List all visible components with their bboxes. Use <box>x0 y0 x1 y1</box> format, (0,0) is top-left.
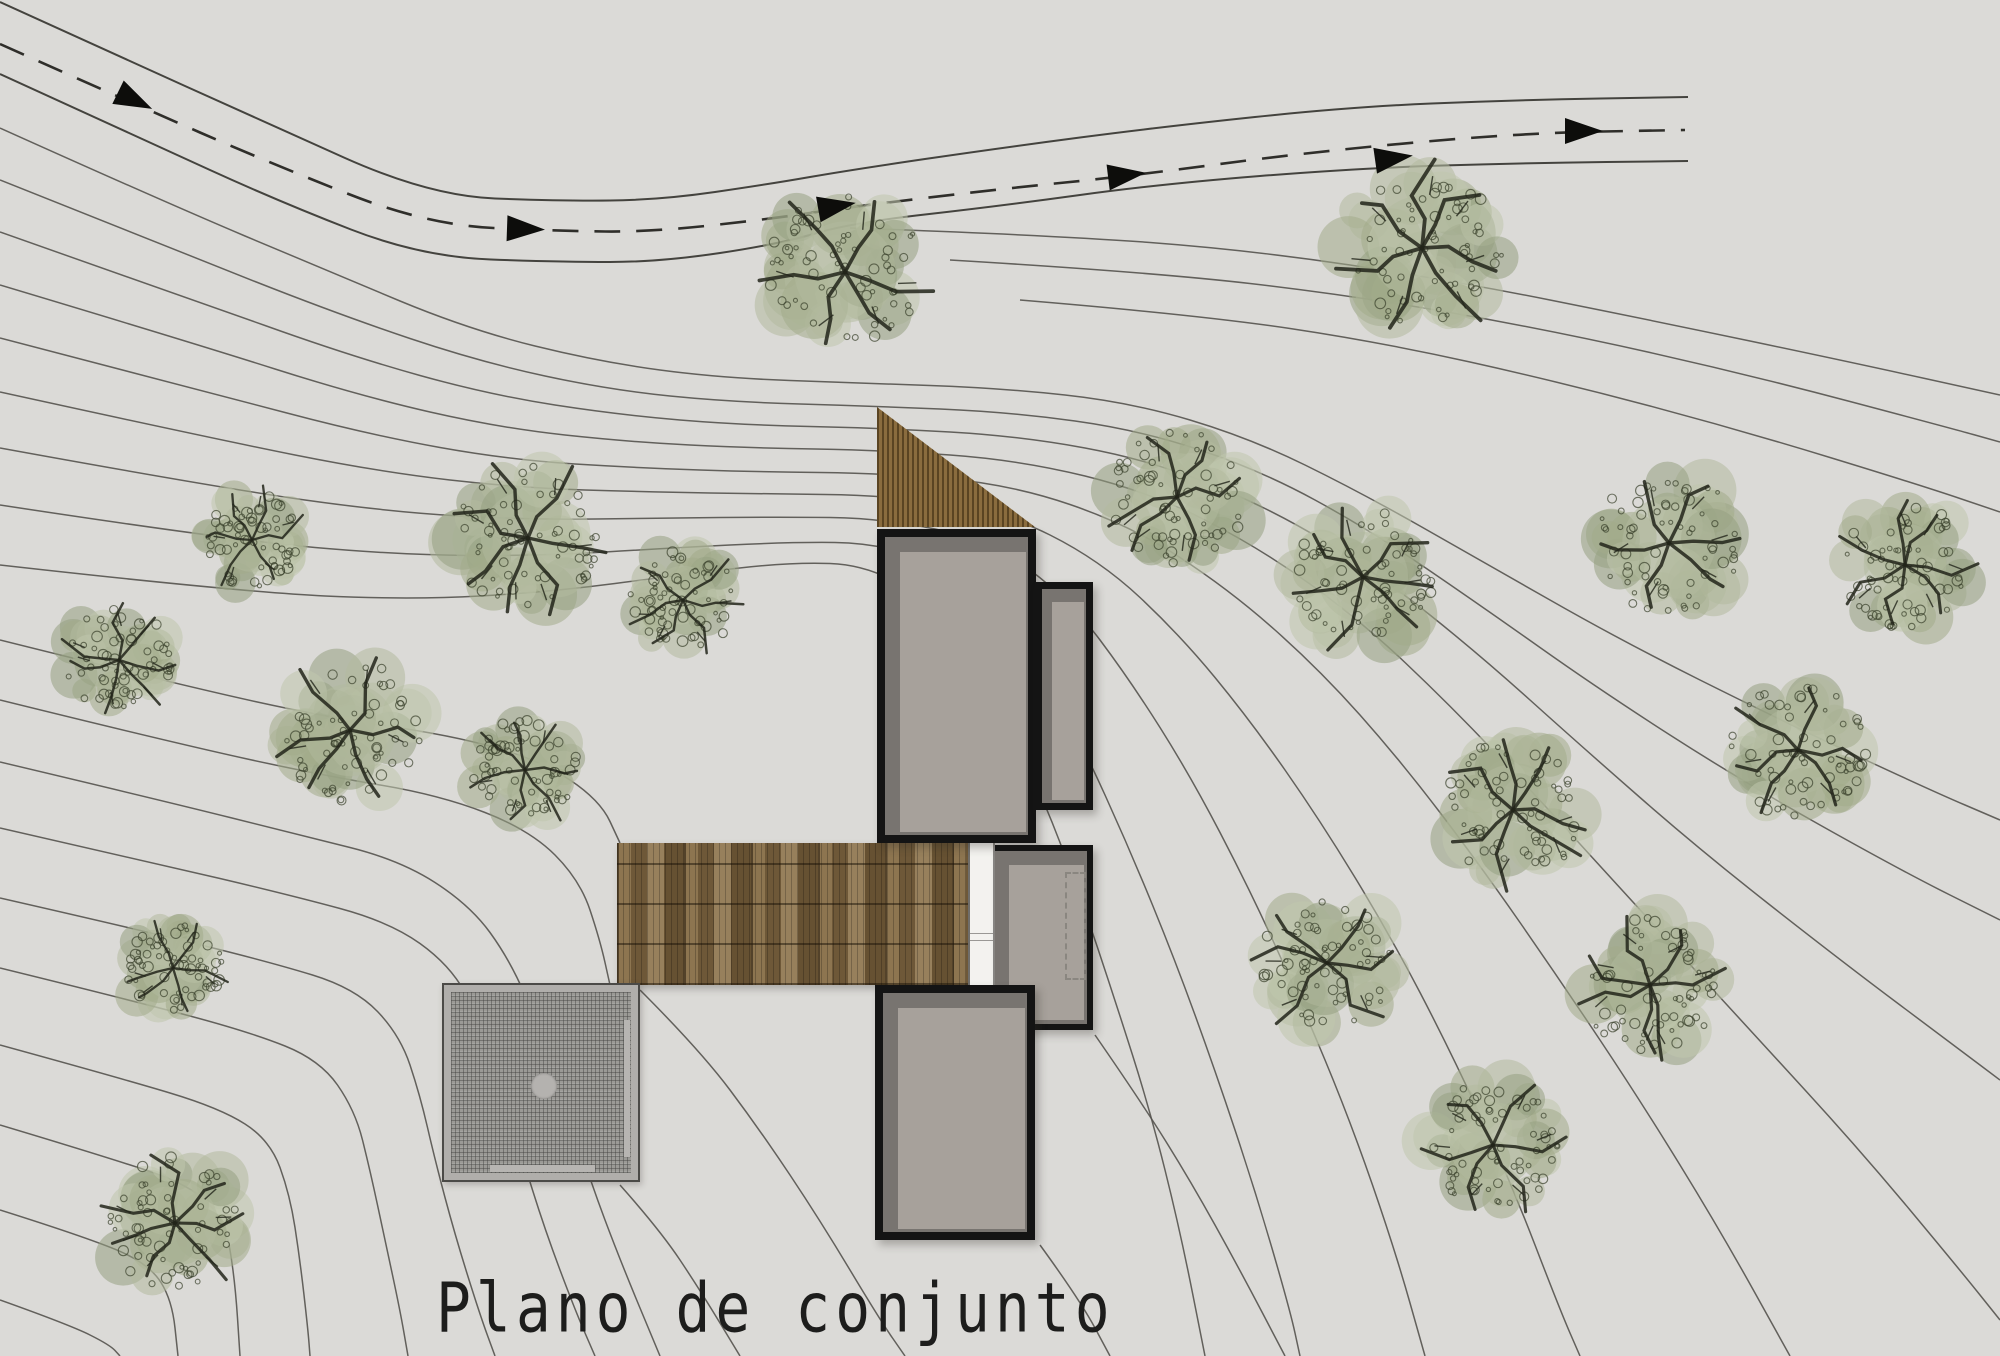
direction-arrow-icon <box>1373 143 1414 174</box>
contour-line <box>0 505 1300 1356</box>
site-plan-canvas: Plano de conjunto <box>0 0 2000 1356</box>
tree <box>1723 673 1878 821</box>
south-building-roof <box>898 1008 1025 1229</box>
wooden-deck-terrace <box>617 843 968 985</box>
contour-line <box>0 128 2000 820</box>
northeast-building-roof <box>1052 602 1084 800</box>
entry-steps <box>968 843 995 985</box>
contour-line <box>0 338 1790 1356</box>
south-building-block <box>875 985 1035 1240</box>
contour-line <box>0 232 2000 1080</box>
tree <box>1248 893 1410 1047</box>
contour-lines <box>0 0 2000 1356</box>
contour-line <box>1095 1035 1285 1356</box>
tree <box>755 193 934 347</box>
contour-line <box>950 260 2000 442</box>
patio-paving-grid <box>451 992 631 1173</box>
gridded-patio <box>442 983 640 1182</box>
tree <box>1430 727 1601 891</box>
direction-arrow-icon <box>1565 118 1603 144</box>
contour-line <box>0 563 1205 1356</box>
tree-canopies <box>0 0 2000 1356</box>
dashed-outline-element <box>1065 872 1086 980</box>
contour-line <box>0 968 408 1356</box>
road-centerline-dashed <box>0 44 1685 232</box>
patio-bench-horizontal <box>490 1165 595 1172</box>
tree <box>1402 1059 1570 1218</box>
tree <box>1829 492 1986 645</box>
contour-line <box>0 640 620 843</box>
contour-line <box>850 228 2000 395</box>
direction-arrow-icon <box>1107 160 1148 190</box>
tree <box>457 706 585 831</box>
tree <box>1091 424 1266 574</box>
tree <box>50 603 182 716</box>
patio-circle-feature <box>531 1073 557 1099</box>
tree <box>620 536 743 659</box>
east-building-block <box>995 845 1093 1030</box>
tree <box>115 914 228 1023</box>
contour-line <box>0 448 1425 1356</box>
patio-bench-vertical <box>624 1020 630 1157</box>
contour-line <box>0 1125 240 1356</box>
main-building-roof <box>900 552 1026 832</box>
road-direction-arrows <box>0 0 2000 1356</box>
direction-arrow-icon <box>816 190 858 222</box>
direction-arrow-icon <box>112 81 158 121</box>
tree <box>1581 459 1749 620</box>
contour-line <box>1020 300 2000 512</box>
contour-line <box>0 1210 178 1356</box>
contour-line <box>0 1045 310 1356</box>
northeast-building-block <box>1035 582 1093 810</box>
contour-line <box>0 285 2000 1320</box>
tree <box>191 480 309 603</box>
contour-line <box>0 700 610 985</box>
direction-arrow-icon <box>507 215 546 242</box>
contour-line <box>0 180 2000 920</box>
tree <box>268 648 442 811</box>
tree <box>428 452 606 626</box>
tree <box>1274 496 1438 663</box>
tree <box>1565 894 1735 1065</box>
road-edge-line <box>0 74 1688 262</box>
contour-line <box>0 392 1580 1356</box>
triangular-wood-roof <box>877 407 1035 527</box>
tree <box>1318 155 1519 338</box>
main-building-block <box>877 529 1036 843</box>
contour-line <box>0 1300 120 1356</box>
plan-title: Plano de conjunto <box>436 1268 1115 1348</box>
contour-line <box>0 898 495 1356</box>
road-edge-line <box>0 2 1688 201</box>
building-complex <box>0 0 2000 1356</box>
east-building-roof <box>1009 865 1084 1020</box>
tree <box>95 1147 254 1295</box>
